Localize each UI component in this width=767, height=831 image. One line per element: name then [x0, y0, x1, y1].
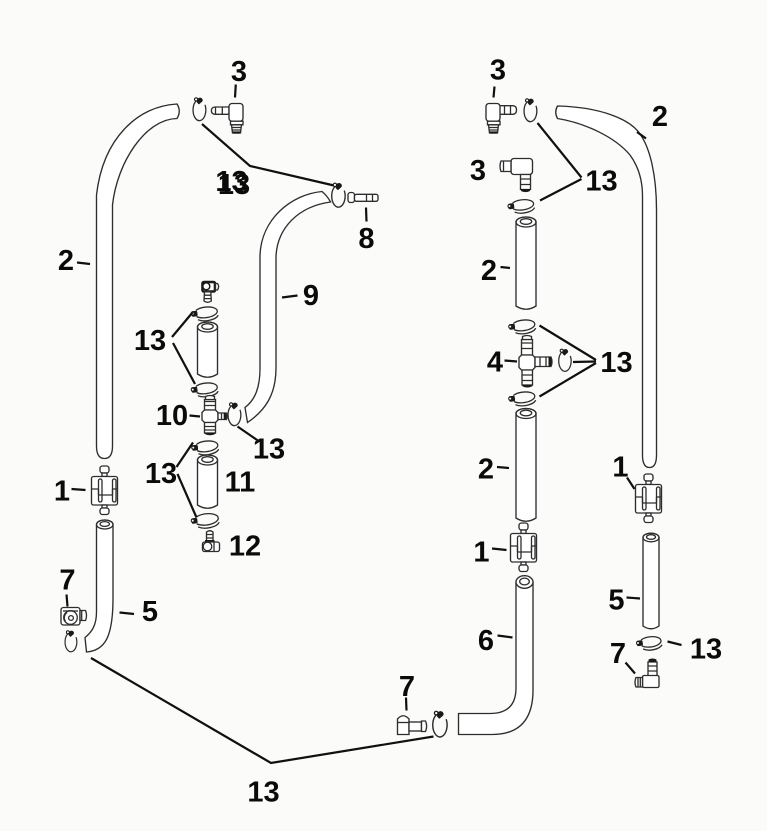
svg-text:2: 2 — [652, 101, 668, 133]
svg-text:13: 13 — [690, 634, 722, 666]
svg-text:13: 13 — [218, 169, 250, 201]
svg-text:1: 1 — [473, 537, 489, 569]
svg-text:13: 13 — [145, 458, 177, 490]
svg-text:11: 11 — [225, 467, 256, 499]
svg-text:12: 12 — [229, 531, 261, 563]
svg-text:10: 10 — [156, 400, 188, 432]
svg-text:3: 3 — [231, 56, 247, 88]
svg-text:5: 5 — [608, 585, 624, 617]
svg-text:8: 8 — [358, 223, 374, 255]
svg-text:13: 13 — [585, 166, 617, 198]
svg-text:7: 7 — [59, 565, 75, 597]
svg-text:1: 1 — [54, 476, 70, 508]
svg-text:5: 5 — [142, 596, 158, 628]
svg-text:4: 4 — [487, 347, 503, 379]
svg-text:13: 13 — [134, 325, 166, 357]
svg-text:7: 7 — [610, 638, 626, 670]
svg-text:9: 9 — [303, 280, 319, 312]
svg-text:2: 2 — [478, 454, 494, 486]
svg-text:3: 3 — [470, 155, 486, 187]
svg-text:13: 13 — [253, 434, 285, 466]
svg-text:1: 1 — [612, 452, 628, 484]
svg-text:13: 13 — [247, 777, 279, 809]
svg-text:13: 13 — [600, 347, 632, 379]
svg-text:3: 3 — [490, 55, 506, 87]
svg-text:2: 2 — [58, 245, 74, 277]
svg-text:2: 2 — [481, 255, 497, 287]
svg-text:6: 6 — [478, 625, 494, 657]
